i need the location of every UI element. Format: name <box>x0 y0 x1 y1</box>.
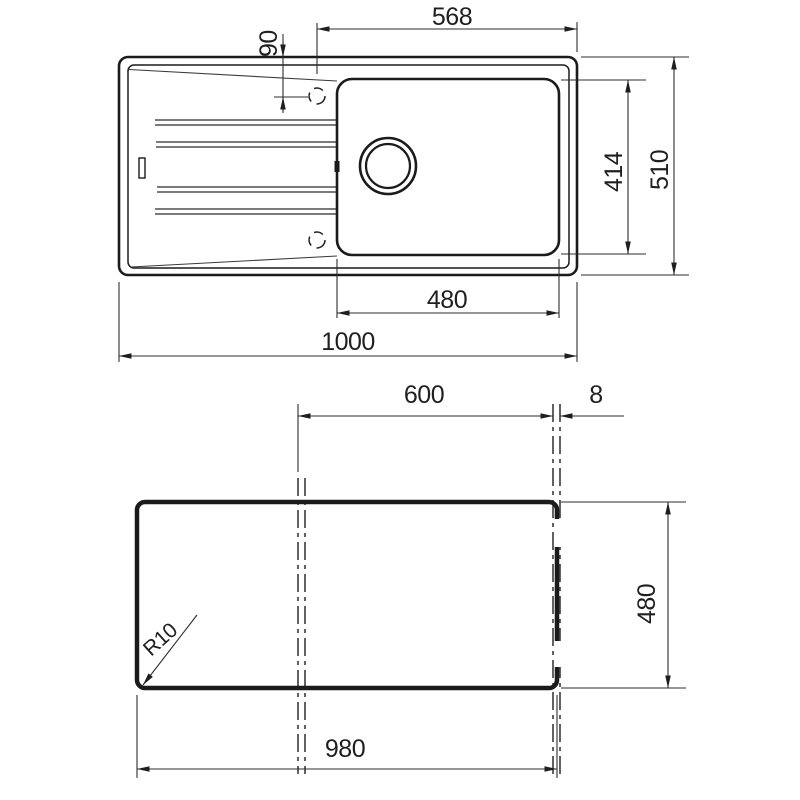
dim-label-980: 980 <box>325 735 365 763</box>
dim-label-600: 600 <box>404 381 444 409</box>
cutout-rectangle <box>137 502 557 688</box>
dim-414: 414 <box>561 80 646 254</box>
edge-break-bottom <box>555 641 562 667</box>
dim-r10: R10 <box>139 615 197 685</box>
dim-label-510: 510 <box>646 150 674 190</box>
dim-8: 8 <box>560 381 624 416</box>
drainboard-grooves <box>155 120 336 214</box>
sink-top-view: 568 90 510 414 480 <box>119 3 689 362</box>
dim-label-480-top: 480 <box>427 286 467 314</box>
dim-label-r10: R10 <box>139 619 182 661</box>
rim-slot <box>139 158 145 178</box>
dim-label-1000: 1000 <box>321 328 375 356</box>
dim-90: 90 <box>255 30 283 113</box>
edge-break-top <box>555 519 562 547</box>
dim-label-480-bottom: 480 <box>633 584 661 624</box>
dim-label-414: 414 <box>600 151 628 192</box>
sink-inner-rim <box>128 65 569 268</box>
tap-hole-top <box>306 85 327 106</box>
sink-bowl <box>337 79 559 255</box>
dim-label-8: 8 <box>589 381 602 409</box>
technical-drawing-canvas: 568 90 510 414 480 <box>0 0 800 800</box>
dim-label-568: 568 <box>432 3 472 31</box>
drainboard-taper-top <box>129 70 337 82</box>
sink-dimension-drawing: 568 90 510 414 480 <box>0 0 800 800</box>
dim-1000: 1000 <box>119 282 577 362</box>
dim-600: 600 <box>298 381 553 416</box>
drainboard-taper-bottom <box>131 256 337 267</box>
dim-980: 980 <box>137 695 557 778</box>
dim-480-bottom: 480 <box>561 502 686 688</box>
dim-label-90: 90 <box>255 30 283 57</box>
cutout-centerlines <box>298 404 560 774</box>
tap-hole-bottom <box>306 229 327 250</box>
dim-510: 510 <box>581 57 689 275</box>
bowl-overflow-mark <box>335 161 340 172</box>
drain-outlet <box>360 138 416 194</box>
dim-568: 568 <box>317 3 577 74</box>
sink-cutout-view: 600 8 480 980 R10 <box>137 381 686 778</box>
sink-outer-edge <box>119 57 577 275</box>
